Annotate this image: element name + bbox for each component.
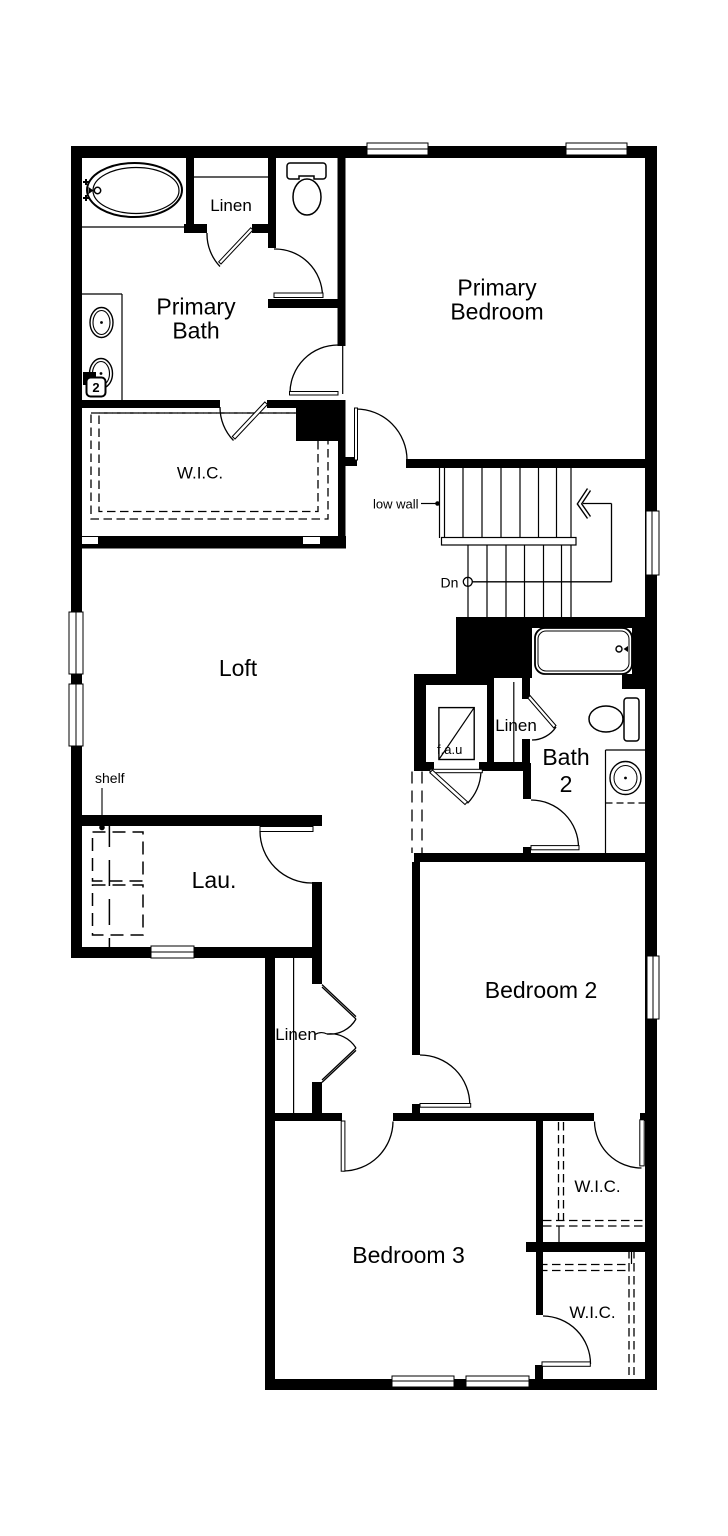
svg-text:2: 2 bbox=[560, 771, 573, 797]
svg-text:Bath: Bath bbox=[172, 318, 219, 344]
svg-text:Primary: Primary bbox=[156, 294, 236, 320]
svg-text:Primary: Primary bbox=[457, 275, 537, 301]
svg-text:Lau.: Lau. bbox=[192, 867, 237, 893]
svg-text:Bedroom 3: Bedroom 3 bbox=[352, 1242, 465, 1268]
svg-text:f.a.u: f.a.u bbox=[437, 742, 462, 757]
svg-text:Dn: Dn bbox=[441, 575, 459, 591]
svg-text:W.I.C.: W.I.C. bbox=[177, 464, 223, 483]
svg-text:Linen: Linen bbox=[275, 1025, 317, 1044]
svg-text:Loft: Loft bbox=[219, 655, 258, 681]
svg-text:Bedroom: Bedroom bbox=[450, 299, 543, 325]
svg-text:Linen: Linen bbox=[210, 196, 252, 215]
svg-text:Bath: Bath bbox=[542, 744, 589, 770]
svg-text:Bedroom 2: Bedroom 2 bbox=[485, 977, 598, 1003]
svg-text:W.I.C.: W.I.C. bbox=[574, 1177, 620, 1196]
svg-text:Linen: Linen bbox=[495, 716, 537, 735]
svg-text:W.I.C.: W.I.C. bbox=[569, 1303, 615, 1322]
svg-text:2: 2 bbox=[92, 380, 99, 395]
svg-text:shelf: shelf bbox=[95, 770, 125, 786]
svg-text:low wall: low wall bbox=[373, 497, 419, 512]
